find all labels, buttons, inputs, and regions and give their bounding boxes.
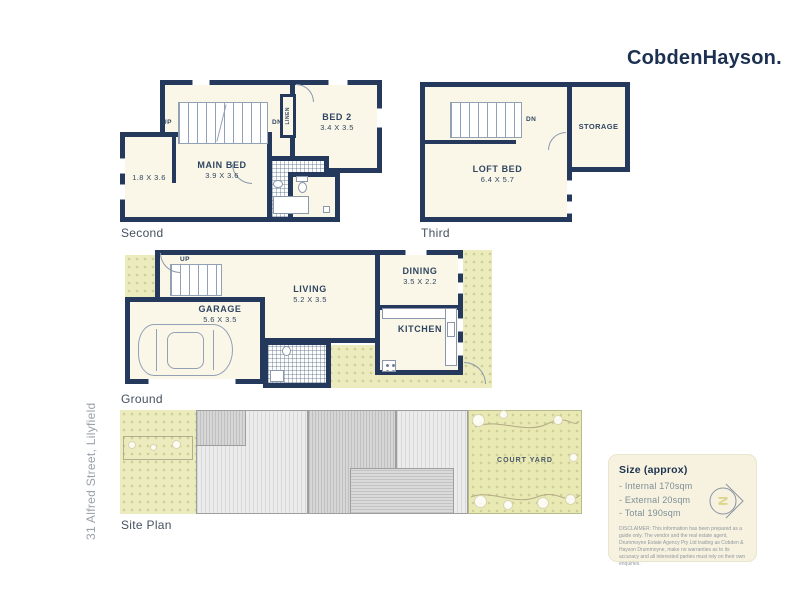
front-garden: [125, 255, 157, 300]
third-stairs: [450, 102, 522, 138]
dining-name: DINING: [382, 266, 458, 276]
plant-icon: [172, 440, 181, 449]
window: [458, 282, 463, 294]
third-dn-label: DN: [526, 116, 536, 123]
kitchen-counter-right: [445, 308, 457, 366]
car-detail-line: [213, 330, 214, 370]
roof-section-notch: [196, 410, 246, 446]
disclaimer-text: DISCLAIMER: This information has been pr…: [619, 526, 748, 568]
plant-icon: [537, 497, 549, 509]
bed2-label: BED 2 3.4 X 3.5: [298, 112, 376, 132]
bed2-name: BED 2: [298, 112, 376, 122]
window: [458, 258, 463, 274]
loft-bed-label: LOFT BED 6.4 X 5.7: [445, 164, 550, 184]
kitchen-name: KITCHEN: [382, 324, 458, 334]
shower-drain-icon: [323, 206, 330, 213]
plant-icon: [503, 500, 513, 510]
compass-letter: N: [716, 496, 731, 505]
kitchen-label: KITCHEN: [382, 324, 458, 334]
main-bed-name: MAIN BED: [192, 160, 252, 170]
roof-section-skillion: [350, 468, 454, 514]
compass-north-icon: N: [704, 479, 750, 528]
living-name: LIVING: [265, 284, 355, 294]
storage-name: STORAGE: [568, 122, 629, 131]
ground-floor-caption: Ground: [121, 392, 163, 406]
laundry-tub-icon: [270, 370, 284, 382]
nook-label: 1.8 X 3.6: [126, 172, 172, 182]
basin-icon: [273, 180, 283, 188]
window: [405, 250, 427, 255]
ground-up-label: UP: [180, 256, 190, 263]
garage-label: GARAGE 5.6 X 3.5: [175, 304, 265, 324]
floorplan-page: CobdenHayson. 31 Alfred Street, Lilyfiel…: [0, 0, 800, 600]
third-floor-plan: DN LOFT BED 6.4 X 5.7 STORAGE: [420, 82, 638, 224]
bed2-dims: 3.4 X 3.5: [298, 123, 376, 132]
loft-bed-dims: 6.4 X 5.7: [445, 175, 550, 184]
living-label: LIVING 5.2 X 3.5: [265, 284, 355, 304]
garage-door: [148, 379, 236, 384]
dining-label: DINING 3.5 X 2.2: [382, 266, 458, 286]
car-icon: [138, 324, 233, 376]
plant-icon: [565, 494, 576, 505]
loft-bed-name: LOFT BED: [445, 164, 550, 174]
window: [328, 80, 348, 85]
ground-floor-plan: UP GARAGE 5.6 X 3.5 LIVING 5.2: [120, 250, 492, 392]
size-info-card: Size (approx) - Internal 170sqm - Extern…: [608, 454, 757, 562]
toilet-bowl-icon: [298, 182, 307, 193]
car-detail-line: [156, 329, 157, 371]
window: [458, 342, 463, 356]
plant-icon: [553, 415, 563, 425]
second-floor-plan: UP DN LINEN BED 2 3.4 X 3.5 MAIN BED 3.9: [120, 80, 382, 232]
kitchen-counter-top: [382, 308, 454, 319]
window: [567, 201, 572, 214]
window: [458, 318, 463, 332]
nook-dims: 1.8 X 3.6: [126, 173, 172, 182]
window: [120, 184, 125, 200]
garage-name: GARAGE: [175, 304, 265, 314]
second-up-label: UP: [162, 119, 172, 126]
window: [192, 80, 210, 85]
brand-logo: CobdenHayson.: [627, 47, 782, 70]
site-plan: COURT YARD: [120, 408, 582, 518]
linen-closet: LINEN: [280, 94, 296, 138]
second-stairs: [178, 102, 268, 144]
stair-partition-wall: [424, 140, 516, 144]
size-title: Size (approx): [619, 464, 746, 476]
main-bed-label: MAIN BED 3.9 X 3.6: [182, 160, 262, 180]
plant-icon: [474, 495, 487, 508]
plant-icon: [472, 414, 485, 427]
dining-dims: 3.5 X 2.2: [382, 277, 458, 286]
second-floor-caption: Second: [121, 226, 164, 240]
window: [377, 108, 382, 128]
courtyard-area: COURT YARD: [468, 410, 582, 514]
window: [567, 180, 572, 195]
stove-icon: [382, 360, 396, 372]
plant-icon: [150, 444, 157, 451]
plant-icon: [128, 441, 136, 449]
third-floor-caption: Third: [421, 226, 450, 240]
site-plan-caption: Site Plan: [121, 518, 172, 532]
storage-label: STORAGE: [568, 122, 629, 131]
bathtub-icon: [273, 196, 309, 214]
living-dims: 5.2 X 3.5: [265, 295, 355, 304]
courtyard-label: COURT YARD: [469, 457, 581, 464]
garage-dims: 5.6 X 3.5: [175, 315, 265, 324]
toilet-bowl-icon: [282, 346, 291, 356]
window: [120, 158, 125, 174]
property-address: 31 Alfred Street, Lilyfield: [84, 388, 98, 540]
site-front-garden: [120, 410, 196, 514]
plant-icon: [499, 410, 508, 419]
car-cabin: [167, 332, 204, 369]
linen-label: LINEN: [285, 107, 291, 125]
main-bed-dims: 3.9 X 3.6: [182, 171, 262, 180]
nook-partition-wall: [172, 137, 176, 183]
